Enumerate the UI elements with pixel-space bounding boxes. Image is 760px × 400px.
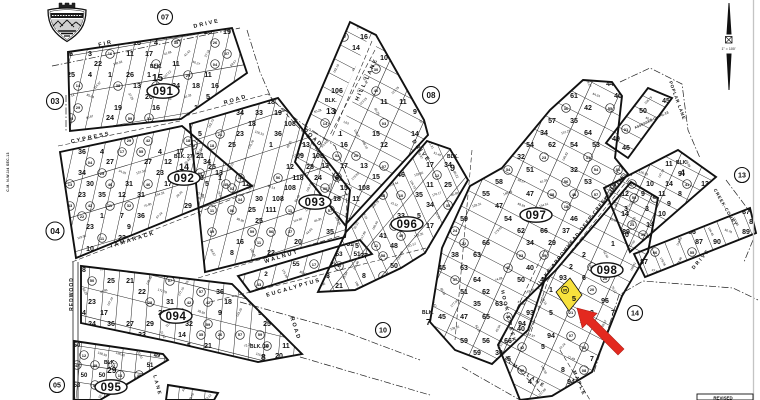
svg-text:9: 9 [218, 310, 222, 317]
svg-text:31: 31 [137, 192, 145, 199]
svg-text:31: 31 [147, 116, 152, 121]
svg-text:30: 30 [255, 196, 263, 203]
svg-text:54: 54 [526, 142, 534, 149]
svg-text:1: 1 [218, 175, 222, 182]
svg-text:106: 106 [331, 88, 343, 95]
svg-text:9: 9 [450, 163, 455, 173]
svg-text:06: 06 [653, 250, 658, 255]
svg-text:8: 8 [678, 191, 682, 198]
svg-text:21: 21 [196, 153, 204, 160]
svg-text:14: 14 [178, 332, 186, 339]
svg-text:45: 45 [438, 314, 446, 321]
svg-text:42: 42 [88, 203, 93, 208]
svg-text:03: 03 [519, 253, 524, 258]
svg-text:4: 4 [88, 70, 92, 79]
svg-text:2: 2 [264, 271, 268, 278]
svg-text:38: 38 [550, 192, 555, 197]
svg-text:12: 12 [621, 191, 629, 198]
svg-text:31: 31 [166, 299, 174, 306]
svg-text:12: 12 [380, 142, 388, 149]
svg-text:36: 36 [564, 106, 569, 111]
svg-text:53: 53 [592, 142, 600, 149]
svg-text:47: 47 [526, 191, 534, 198]
svg-text:14: 14 [76, 83, 81, 88]
svg-text:46: 46 [108, 182, 113, 187]
svg-text:53: 53 [584, 179, 592, 186]
svg-text:092: 092 [174, 173, 195, 185]
svg-text:55: 55 [608, 106, 613, 111]
svg-text:55: 55 [139, 149, 144, 154]
svg-text:9: 9 [641, 191, 645, 198]
svg-text:10: 10 [399, 193, 404, 198]
svg-text:19: 19 [114, 103, 122, 112]
svg-text:12: 12 [118, 192, 126, 199]
svg-text:05: 05 [53, 382, 61, 390]
svg-text:57: 57 [238, 332, 243, 337]
svg-text:118: 118 [292, 175, 303, 182]
svg-text:54: 54 [504, 216, 512, 223]
svg-text:47: 47 [460, 314, 468, 321]
svg-text:29: 29 [186, 73, 191, 78]
svg-text:BLK.: BLK. [676, 160, 688, 166]
svg-text:17: 17 [426, 223, 434, 230]
svg-text:48: 48 [572, 192, 577, 197]
svg-text:23: 23 [236, 131, 244, 138]
svg-text:08: 08 [582, 368, 587, 373]
svg-text:15: 15 [152, 73, 164, 84]
svg-text:4: 4 [82, 310, 86, 317]
svg-text:10: 10 [646, 181, 654, 188]
svg-text:05: 05 [563, 289, 567, 293]
svg-text:23: 23 [542, 155, 547, 160]
svg-text:34: 34 [426, 202, 434, 209]
svg-text:62: 62 [517, 228, 525, 235]
svg-text:5: 5 [355, 243, 359, 250]
svg-text:34: 34 [506, 167, 511, 172]
svg-text:48: 48 [390, 243, 398, 250]
svg-text:15: 15 [372, 131, 380, 138]
svg-text:57: 57 [594, 192, 599, 197]
svg-text:07: 07 [225, 51, 230, 56]
svg-text:42: 42 [520, 345, 525, 350]
svg-text:13: 13 [302, 142, 310, 149]
svg-text:65: 65 [482, 314, 490, 321]
svg-text:12: 12 [286, 164, 294, 171]
svg-text:23: 23 [78, 192, 86, 199]
svg-text:06: 06 [230, 208, 235, 213]
svg-text:30: 30 [86, 181, 94, 188]
svg-text:42: 42 [584, 105, 592, 112]
svg-text:4: 4 [100, 149, 104, 156]
svg-text:25: 25 [228, 142, 236, 149]
svg-text:14: 14 [631, 310, 639, 318]
svg-text:091: 091 [153, 86, 174, 98]
svg-text:8: 8 [82, 267, 86, 274]
svg-text:59: 59 [473, 350, 481, 357]
svg-text:8: 8 [261, 352, 266, 362]
svg-text:14: 14 [179, 162, 189, 172]
svg-text:08: 08 [427, 91, 436, 100]
svg-text:32: 32 [517, 154, 525, 161]
svg-text:26: 26 [213, 40, 218, 45]
svg-text:5: 5 [198, 131, 202, 138]
svg-text:64: 64 [473, 277, 481, 284]
svg-text:23: 23 [88, 299, 96, 306]
svg-text:12: 12 [164, 159, 172, 166]
svg-text:30: 30 [323, 186, 328, 191]
svg-text:5: 5 [549, 310, 553, 317]
svg-text:34: 34 [236, 110, 244, 117]
svg-text:42: 42 [146, 138, 151, 143]
svg-text:20: 20 [354, 153, 359, 158]
svg-text:04: 04 [50, 226, 60, 236]
svg-text:34: 34 [78, 170, 86, 177]
svg-text:25: 25 [248, 207, 256, 214]
svg-text:24: 24 [106, 113, 114, 122]
svg-text:93: 93 [526, 310, 534, 317]
svg-text:13: 13 [738, 172, 746, 180]
svg-text:04: 04 [88, 160, 93, 165]
svg-text:1: 1 [100, 213, 104, 220]
svg-text:34: 34 [526, 240, 534, 247]
svg-text:14: 14 [118, 373, 123, 378]
svg-text:59: 59 [460, 338, 468, 345]
svg-text:9: 9 [127, 224, 131, 231]
svg-text:04: 04 [213, 62, 218, 67]
svg-text:25: 25 [255, 218, 263, 225]
svg-text:18: 18 [248, 121, 256, 128]
svg-text:94: 94 [518, 321, 526, 328]
svg-text:07: 07 [168, 278, 173, 283]
svg-text:38: 38 [116, 83, 121, 88]
svg-text:51: 51 [460, 289, 468, 296]
svg-text:09: 09 [210, 229, 215, 234]
svg-text:BLK.: BLK. [150, 64, 162, 70]
svg-text:21: 21 [335, 283, 343, 290]
svg-text:58: 58 [381, 253, 386, 258]
svg-text:29: 29 [146, 321, 154, 328]
svg-text:54: 54 [570, 142, 578, 149]
svg-text:32: 32 [127, 203, 132, 208]
svg-text:07: 07 [630, 182, 635, 187]
svg-text:93: 93 [559, 275, 567, 282]
svg-text:22: 22 [138, 289, 146, 296]
svg-text:14: 14 [646, 222, 654, 229]
svg-text:46: 46 [622, 145, 630, 152]
svg-text:01: 01 [624, 127, 629, 132]
svg-text:29: 29 [100, 171, 105, 176]
svg-text:35: 35 [473, 301, 481, 308]
svg-text:20: 20 [294, 239, 302, 246]
svg-text:29: 29 [107, 365, 117, 375]
svg-text:17: 17 [100, 310, 108, 317]
svg-text:50: 50 [90, 278, 95, 283]
svg-text:REDWOOD: REDWOOD [69, 277, 75, 311]
svg-text:07: 07 [382, 164, 387, 169]
svg-text:22: 22 [80, 214, 85, 219]
svg-text:03: 03 [382, 121, 387, 126]
svg-text:1: 1 [549, 287, 553, 294]
svg-text:50: 50 [639, 108, 647, 115]
svg-text:51: 51 [526, 167, 534, 174]
svg-text:59: 59 [206, 322, 211, 327]
svg-text:35: 35 [446, 203, 451, 208]
svg-text:24: 24 [453, 228, 458, 233]
svg-text:36: 36 [78, 149, 86, 156]
svg-text:2: 2 [582, 252, 586, 259]
svg-text:38: 38 [451, 252, 459, 259]
svg-text:13: 13 [360, 163, 368, 170]
svg-text:13: 13 [133, 81, 141, 90]
svg-text:7: 7 [120, 213, 124, 220]
svg-text:66: 66 [540, 228, 548, 235]
svg-text:04: 04 [335, 175, 340, 180]
svg-text:27: 27 [126, 321, 134, 328]
svg-text:8: 8 [561, 367, 565, 374]
svg-text:22: 22 [462, 241, 467, 246]
svg-text:61: 61 [570, 93, 578, 100]
svg-text:8: 8 [230, 250, 234, 257]
svg-text:35: 35 [415, 192, 423, 199]
svg-text:21: 21 [126, 278, 134, 285]
svg-text:59: 59 [460, 216, 468, 223]
svg-text:49: 49 [93, 363, 98, 368]
svg-text:2: 2 [569, 264, 573, 271]
svg-text:07: 07 [161, 14, 169, 22]
svg-text:35: 35 [326, 229, 334, 236]
svg-text:34: 34 [238, 197, 243, 202]
svg-text:17: 17 [120, 149, 125, 154]
svg-text:64: 64 [584, 130, 592, 137]
svg-text:87: 87 [640, 259, 648, 266]
svg-text:098: 098 [597, 265, 618, 277]
svg-text:50: 50 [99, 373, 106, 379]
svg-text:50: 50 [517, 277, 525, 284]
svg-text:8: 8 [362, 273, 366, 280]
svg-text:57: 57 [199, 289, 204, 294]
svg-text:43: 43 [257, 282, 262, 287]
svg-text:14: 14 [621, 211, 629, 218]
svg-text:62: 62 [548, 142, 556, 149]
svg-text:13: 13 [68, 182, 73, 187]
svg-text:BLK.: BLK. [447, 154, 459, 160]
svg-text:11: 11 [172, 59, 180, 68]
svg-text:18: 18 [564, 204, 569, 209]
svg-text:46: 46 [570, 216, 578, 223]
svg-text:BLK.: BLK. [325, 98, 337, 104]
svg-text:40: 40 [374, 88, 379, 93]
svg-text:46: 46 [146, 182, 151, 187]
svg-text:42: 42 [206, 300, 211, 305]
svg-text:35: 35 [199, 332, 204, 337]
svg-text:49: 49 [612, 136, 620, 143]
svg-text:37: 37 [288, 229, 293, 234]
svg-text:57: 57 [548, 118, 556, 125]
svg-text:18: 18 [192, 81, 200, 90]
svg-text:59: 59 [258, 332, 263, 337]
svg-text:56: 56 [276, 175, 281, 180]
svg-text:12: 12 [82, 353, 87, 358]
svg-text:26: 26 [218, 332, 223, 337]
svg-text:32: 32 [570, 167, 578, 174]
svg-text:16: 16 [360, 34, 368, 41]
svg-text:17: 17 [312, 262, 317, 267]
svg-text:28: 28 [148, 300, 153, 305]
svg-text:36: 36 [216, 289, 224, 296]
svg-text:29: 29 [548, 240, 556, 247]
svg-text:47: 47 [506, 265, 511, 270]
svg-text:14: 14 [323, 121, 328, 126]
svg-text:16: 16 [211, 81, 219, 90]
svg-text:18: 18 [224, 299, 232, 306]
svg-text:C.M. N.W.1/4 SEC.13: C.M. N.W.1/4 SEC.13 [6, 152, 10, 192]
svg-text:BLK.: BLK. [422, 310, 434, 316]
svg-text:REVISED: REVISED [713, 396, 732, 400]
svg-text:094: 094 [166, 311, 187, 323]
svg-text:22: 22 [94, 59, 102, 68]
svg-text:11: 11 [665, 161, 673, 168]
svg-text:4: 4 [158, 149, 162, 156]
svg-text:55: 55 [482, 191, 490, 198]
svg-text:23: 23 [86, 224, 94, 231]
svg-text:BLK. 16: BLK. 16 [250, 344, 269, 350]
svg-text:56: 56 [564, 179, 569, 184]
svg-text:108: 108 [284, 121, 296, 128]
svg-text:42: 42 [187, 300, 192, 305]
svg-text:31: 31 [125, 181, 133, 188]
svg-text:07: 07 [569, 333, 574, 338]
svg-text:27: 27 [144, 159, 152, 166]
svg-text:42: 42 [75, 363, 80, 368]
svg-text:18: 18 [210, 143, 215, 148]
svg-text:7: 7 [426, 317, 431, 327]
svg-text:35: 35 [98, 192, 106, 199]
svg-text:15: 15 [372, 174, 380, 181]
svg-text:10: 10 [658, 211, 666, 218]
svg-text:21: 21 [218, 132, 223, 137]
svg-text:093: 093 [305, 197, 326, 209]
svg-text:10: 10 [379, 327, 387, 335]
svg-text:58: 58 [495, 179, 503, 186]
svg-text:54: 54 [594, 167, 599, 172]
svg-text:16: 16 [108, 51, 113, 56]
svg-text:096: 096 [397, 219, 418, 231]
svg-text:40: 40 [526, 265, 534, 272]
svg-text:13: 13 [326, 106, 336, 116]
svg-text:12: 12 [435, 173, 440, 178]
svg-text:095: 095 [101, 382, 122, 394]
svg-text:50: 50 [390, 263, 398, 270]
svg-text:96: 96 [601, 298, 609, 305]
svg-text:36: 36 [274, 131, 282, 138]
svg-text:56: 56 [482, 338, 490, 345]
svg-text:59: 59 [542, 253, 547, 258]
svg-text:108: 108 [272, 196, 284, 203]
svg-text:56: 56 [269, 229, 274, 234]
svg-text:29: 29 [76, 105, 81, 110]
svg-text:6: 6 [582, 275, 586, 282]
svg-text:47: 47 [495, 203, 503, 210]
svg-text:36: 36 [107, 321, 115, 328]
svg-text:18: 18 [238, 175, 243, 180]
svg-text:01: 01 [616, 167, 621, 172]
svg-text:11: 11 [399, 99, 407, 106]
svg-text:24: 24 [314, 175, 322, 182]
svg-text:108: 108 [284, 185, 296, 192]
svg-text:097: 097 [526, 210, 547, 222]
svg-text:16: 16 [236, 239, 244, 246]
svg-text:25: 25 [208, 164, 216, 171]
svg-text:108: 108 [358, 185, 370, 192]
svg-text:19: 19 [274, 110, 282, 117]
svg-text:36: 36 [137, 213, 145, 220]
svg-text:16: 16 [152, 103, 160, 112]
svg-text:15: 15 [582, 345, 587, 350]
svg-text:55: 55 [292, 261, 300, 268]
svg-text:108: 108 [312, 153, 324, 160]
svg-text:4: 4 [680, 168, 685, 178]
svg-text:31: 31 [586, 155, 591, 160]
svg-text:62: 62 [482, 289, 490, 296]
svg-text:11: 11 [658, 191, 666, 198]
svg-text:25: 25 [444, 182, 452, 189]
svg-text:37: 37 [562, 228, 570, 235]
svg-text:16: 16 [340, 142, 348, 149]
svg-text:5: 5 [572, 294, 576, 303]
svg-text:14: 14 [352, 45, 360, 52]
svg-text:11: 11 [204, 70, 212, 79]
svg-text:1" = 100': 1" = 100' [721, 47, 735, 51]
svg-text:23: 23 [156, 170, 164, 177]
svg-text:94: 94 [547, 333, 555, 340]
svg-text:5: 5 [541, 344, 545, 351]
svg-text:17: 17 [145, 49, 153, 58]
svg-text:40: 40 [337, 263, 342, 268]
svg-text:3: 3 [88, 49, 92, 58]
svg-text:20: 20 [590, 287, 595, 292]
svg-text:29: 29 [127, 138, 132, 143]
svg-text:14: 14 [665, 181, 673, 188]
svg-text:39: 39 [641, 232, 646, 237]
svg-text:87: 87 [695, 239, 703, 246]
svg-text:1: 1 [108, 70, 112, 79]
svg-text:59: 59 [128, 116, 133, 121]
svg-text:41: 41 [379, 233, 387, 240]
svg-text:34: 34 [540, 130, 548, 137]
svg-text:55: 55 [690, 250, 695, 255]
svg-text:BLK. 27: BLK. 27 [174, 154, 193, 160]
svg-text:11: 11 [426, 182, 434, 189]
svg-text:27: 27 [106, 159, 114, 166]
svg-text:11: 11 [282, 343, 290, 350]
svg-text:11: 11 [352, 196, 360, 203]
svg-text:7: 7 [590, 356, 594, 363]
svg-text:37: 37 [360, 253, 368, 260]
svg-text:50: 50 [81, 373, 88, 379]
svg-text:33: 33 [255, 110, 263, 117]
svg-text:1: 1 [269, 142, 273, 149]
svg-text:9: 9 [413, 109, 417, 116]
svg-text:90: 90 [713, 239, 721, 246]
svg-text:1: 1 [611, 241, 615, 248]
svg-text:1: 1 [147, 70, 151, 79]
svg-text:11: 11 [380, 99, 388, 106]
svg-text:24: 24 [630, 222, 635, 227]
svg-text:03: 03 [51, 97, 60, 106]
svg-text:26: 26 [126, 70, 134, 79]
svg-text:02: 02 [230, 186, 235, 191]
svg-text:37: 37 [453, 277, 458, 282]
